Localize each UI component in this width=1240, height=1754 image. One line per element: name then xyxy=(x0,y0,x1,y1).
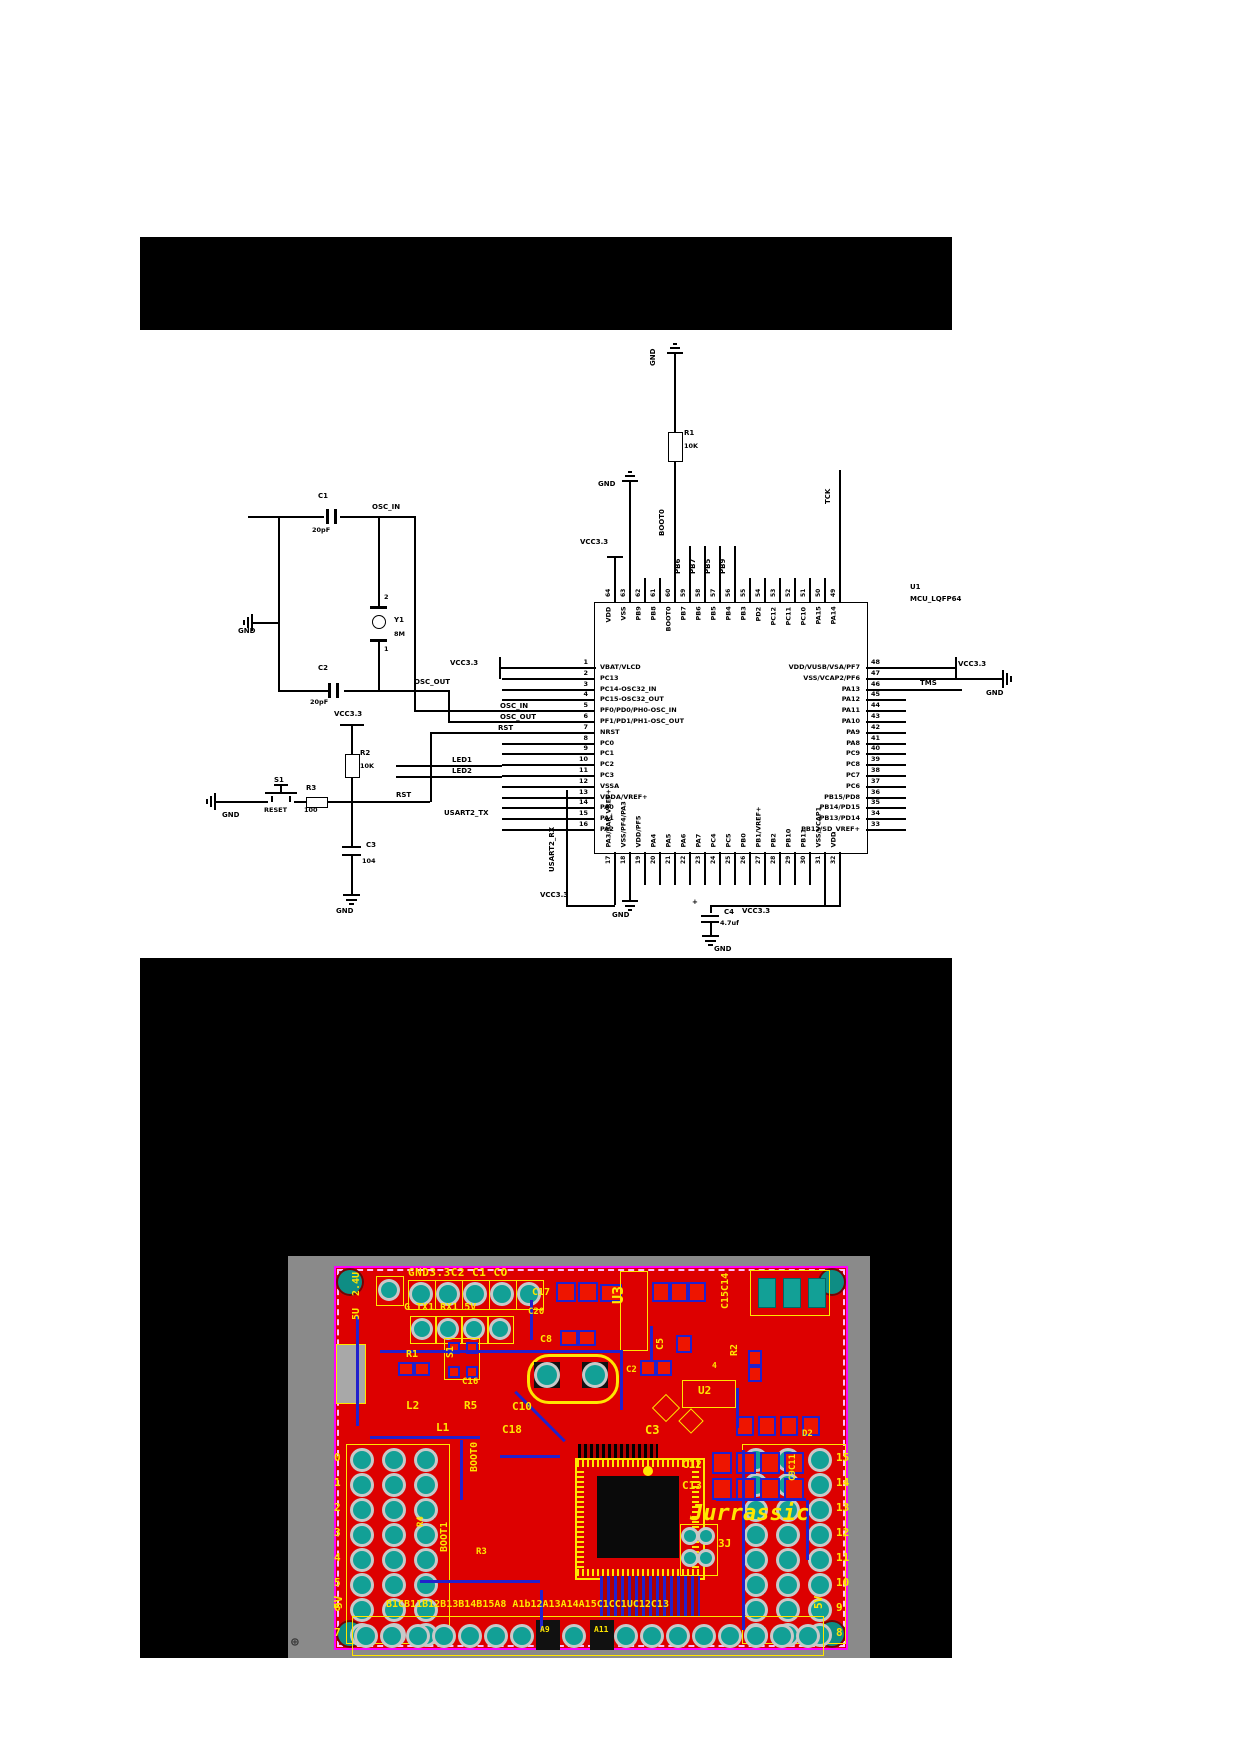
pin-number: 49 xyxy=(831,589,837,597)
pin-number: 16 xyxy=(560,821,588,828)
smd-pad xyxy=(560,1330,578,1346)
pin-stub xyxy=(734,852,736,885)
wire xyxy=(710,905,712,913)
y1-plate xyxy=(370,639,387,642)
right-header-number: 15 xyxy=(836,1452,849,1463)
smd-pad xyxy=(748,1350,762,1366)
silk-l2: L2 xyxy=(406,1400,419,1411)
net-label-pb5: PB5 xyxy=(705,559,712,574)
silk-r4: R4 xyxy=(417,1516,426,1527)
c4-ref: C4 xyxy=(724,909,734,916)
pin-number: 54 xyxy=(756,589,762,597)
hole-center xyxy=(585,1365,605,1385)
wire xyxy=(566,790,568,906)
right-header-number: 14 xyxy=(836,1477,849,1488)
wire xyxy=(866,689,962,691)
pin-label: PB7 xyxy=(681,606,688,620)
pin-number: 19 xyxy=(636,856,642,864)
electrolytic-cap xyxy=(808,1278,826,1308)
c1-plate xyxy=(326,509,329,524)
pin-label: VDD xyxy=(606,607,613,623)
wire xyxy=(351,802,353,846)
hole-center xyxy=(412,1285,430,1303)
pin-label: PA11 xyxy=(702,707,860,714)
pin-stub xyxy=(794,852,796,885)
pin-number: 15 xyxy=(560,810,588,817)
smd-pad xyxy=(578,1282,598,1302)
hole-center xyxy=(357,1627,375,1645)
wire xyxy=(704,546,706,602)
smd-pad xyxy=(414,1362,430,1376)
wire xyxy=(710,905,841,907)
y1-value: 8M xyxy=(394,631,405,638)
pin-stub xyxy=(644,852,646,885)
wire xyxy=(248,516,324,518)
pin-number: 27 xyxy=(756,856,762,864)
hole-center xyxy=(417,1476,435,1494)
r1-ref: R1 xyxy=(684,430,694,437)
pin-stub xyxy=(719,852,721,885)
hole-center xyxy=(409,1627,427,1645)
hole-center xyxy=(669,1627,687,1645)
wire xyxy=(628,471,632,473)
pin-label: VDD/PF5 xyxy=(636,816,643,848)
pin-label: PA14 xyxy=(831,606,838,624)
net-label-tms: TMS xyxy=(920,680,937,687)
wire xyxy=(448,721,504,723)
smd-pad xyxy=(448,1366,460,1378)
smd-pad xyxy=(760,1452,780,1474)
hole-center xyxy=(700,1552,712,1564)
left-header-number: 1 xyxy=(334,1477,341,1488)
hole-center xyxy=(537,1365,557,1385)
wire xyxy=(351,856,353,894)
smd-pad xyxy=(398,1362,414,1376)
smd-pad xyxy=(688,1282,706,1302)
pin-label: PA5 xyxy=(666,834,673,848)
pin-stub xyxy=(502,721,594,723)
wire xyxy=(265,792,297,794)
copper-trace xyxy=(736,1388,739,1428)
smd-pad xyxy=(676,1335,692,1353)
silk-c2: C2 xyxy=(626,1366,637,1375)
usb-connector xyxy=(336,1344,366,1404)
hole-center xyxy=(385,1551,403,1569)
net-label-usart_rx: USART2_RX xyxy=(549,827,556,872)
wire xyxy=(343,894,360,896)
wire xyxy=(280,786,282,792)
copper-trace xyxy=(530,1300,533,1340)
hole-center xyxy=(811,1526,829,1544)
pin-number: 53 xyxy=(771,589,777,597)
pin-number: 48 xyxy=(871,659,880,666)
r1-value: 10K xyxy=(684,443,698,450)
wire xyxy=(839,470,841,602)
hole-center xyxy=(747,1526,765,1544)
hole-center xyxy=(565,1627,583,1645)
pin-number: 32 xyxy=(831,856,837,864)
silk-j3: 3J xyxy=(718,1538,731,1549)
y1-plate xyxy=(370,606,387,609)
pin-label: PC5 xyxy=(726,833,733,847)
hole-center xyxy=(811,1576,829,1594)
c3-ref: C3 xyxy=(366,842,376,849)
pin-number: 44 xyxy=(871,702,880,709)
c2-plate xyxy=(336,683,339,698)
r2-body xyxy=(345,754,360,778)
silk-boot1: BOOT1 xyxy=(440,1522,450,1552)
wire xyxy=(719,546,721,602)
smd-pad xyxy=(784,1478,804,1500)
pin-label: VDD xyxy=(831,832,838,848)
c1-plate xyxy=(334,509,337,524)
pin-number: 62 xyxy=(636,589,642,597)
pin-stub xyxy=(809,578,811,602)
wire xyxy=(629,482,631,602)
silk-bottom_row: B1CB11B12B13B14B15A8 A1b12A13A14A15C1CC1… xyxy=(386,1600,669,1610)
pin-number: 56 xyxy=(726,589,732,597)
pin-number: 60 xyxy=(666,589,672,597)
wire xyxy=(253,622,280,624)
net-label-gnd: GND xyxy=(986,690,1003,697)
pin-label: PC11 xyxy=(786,607,793,626)
wire xyxy=(294,801,306,803)
pin-stub xyxy=(764,578,766,602)
y1-circle xyxy=(372,615,386,629)
wire xyxy=(1002,670,1004,688)
net-label-tck: TCK xyxy=(825,489,832,504)
hole-center xyxy=(353,1476,371,1494)
pin-label: PA12 xyxy=(702,696,860,703)
pin-label: PC15-OSC32_OUT xyxy=(600,696,664,703)
pin-number: 33 xyxy=(871,821,880,828)
pin-label: PA3/SAR_VREF+ xyxy=(606,789,613,847)
pin-label: PD2 xyxy=(756,607,763,622)
y1-pin1: 1 xyxy=(384,646,389,653)
wire xyxy=(501,667,596,669)
silk-u2: U2 xyxy=(698,1385,711,1396)
silk-r1: R1 xyxy=(406,1350,418,1360)
mcu-pins xyxy=(577,1468,584,1568)
mcu-pins xyxy=(577,1460,699,1467)
pin-stub xyxy=(704,852,706,885)
net-label-gnd: GND xyxy=(714,946,731,953)
pin-stub xyxy=(809,852,811,885)
pin-number: 40 xyxy=(871,745,880,752)
hole-center xyxy=(773,1627,791,1645)
hole-center xyxy=(353,1576,371,1594)
hole-center xyxy=(353,1526,371,1544)
smd-pad xyxy=(736,1452,756,1474)
hole-center xyxy=(684,1552,696,1564)
pin-number: 51 xyxy=(801,589,807,597)
pin-number: 38 xyxy=(871,767,880,774)
pin-label: PA7 xyxy=(696,834,703,848)
wire xyxy=(430,732,504,734)
pin-label: PC7 xyxy=(702,772,860,779)
smd-pad xyxy=(652,1282,670,1302)
wire xyxy=(274,784,288,786)
pin-stub xyxy=(764,852,766,885)
pin-label: PC6 xyxy=(702,783,860,790)
smd-pad xyxy=(712,1452,732,1474)
pin-number: 5 xyxy=(560,702,588,709)
pin-label: PC1 xyxy=(600,750,614,757)
silk-c18: C18 xyxy=(502,1424,522,1435)
wire xyxy=(734,546,736,602)
pin-stub xyxy=(779,852,781,885)
wire xyxy=(349,903,354,905)
hole-center xyxy=(466,1321,482,1337)
pin-stub xyxy=(502,732,594,734)
pin-number: 11 xyxy=(560,767,588,774)
wire xyxy=(351,726,353,754)
silk-r2: R2 xyxy=(730,1344,740,1356)
r2-value: 10K xyxy=(360,763,374,770)
pin-number: 23 xyxy=(696,856,702,864)
pin-stub xyxy=(502,710,594,712)
pin-label: VBAT/VLCD xyxy=(600,664,641,671)
pin-number: 25 xyxy=(726,856,732,864)
pin-number: 1 xyxy=(560,659,588,666)
wire xyxy=(866,667,956,669)
smd-pad xyxy=(656,1360,672,1376)
pin-number: 10 xyxy=(560,756,588,763)
hole-center xyxy=(487,1627,505,1645)
pin-number: 36 xyxy=(871,789,880,796)
net-label-osc_out: OSC_OUT xyxy=(500,714,536,721)
silk-c3: C3 xyxy=(645,1424,659,1436)
pin-stub xyxy=(502,678,594,680)
copper-trace xyxy=(540,1590,543,1630)
pin-number: 37 xyxy=(871,778,880,785)
c4-polarity: + xyxy=(692,899,698,906)
pin-label: PA8 xyxy=(702,740,860,747)
silk-four: 4 xyxy=(712,1362,717,1370)
pin-stub xyxy=(502,699,594,701)
wire xyxy=(625,475,635,477)
pin-number: 55 xyxy=(741,589,747,597)
pin-label: VSS/VCAP1 xyxy=(816,807,823,848)
wire xyxy=(566,905,615,907)
c2-value: 20pF xyxy=(310,699,328,706)
left-header-number: 7 xyxy=(334,1627,341,1638)
wire xyxy=(625,905,635,907)
silk-c15c14: C15C14 xyxy=(721,1273,731,1309)
net-label-vcc: VCC3.3 xyxy=(958,661,986,668)
pin-label: PB15/PD8 xyxy=(702,794,860,801)
smd-pad xyxy=(670,1282,688,1302)
pin-label: PC0 xyxy=(600,740,614,747)
smd-pad xyxy=(748,1366,762,1382)
wire xyxy=(216,801,222,803)
pin-label: PA10 xyxy=(702,718,860,725)
wire xyxy=(206,799,208,804)
hole-center xyxy=(513,1627,531,1645)
pin-number: 18 xyxy=(621,856,627,864)
r1-body xyxy=(668,432,683,462)
left-header-number: 4 xyxy=(334,1552,341,1563)
right-header-number: 9 xyxy=(836,1602,843,1613)
pin-number: 30 xyxy=(801,856,807,864)
silk-c17: C17 xyxy=(532,1288,550,1298)
silk-l1: L1 xyxy=(436,1422,449,1433)
pin-number: 47 xyxy=(871,670,880,677)
pin-stub xyxy=(659,852,661,885)
pin-label: NRST xyxy=(600,729,620,736)
net-label-usart_tx: USART2_TX xyxy=(444,810,489,817)
right-header-number: 8 xyxy=(836,1627,843,1638)
net-label-pb7: PB7 xyxy=(690,559,697,574)
silk-c16: C16 xyxy=(462,1378,478,1387)
hole-center xyxy=(353,1501,371,1519)
right-header-number: 12 xyxy=(836,1527,849,1538)
hole-center xyxy=(417,1551,435,1569)
silk-r3: R3 xyxy=(476,1548,487,1557)
silk-c12: C12 xyxy=(682,1459,702,1470)
pin-stub xyxy=(824,578,826,602)
wire xyxy=(448,690,450,722)
copper-trace xyxy=(420,1580,540,1583)
silk-s1: S1 xyxy=(446,1346,456,1358)
c4-value: 4.7uf xyxy=(720,920,739,927)
hole-center xyxy=(811,1551,829,1569)
silk-c9c11: C9C11 xyxy=(789,1454,798,1481)
wire xyxy=(342,846,361,848)
pin-number: 12 xyxy=(560,778,588,785)
net-label-pb9: PB9 xyxy=(720,559,727,574)
wire xyxy=(378,642,380,692)
wire xyxy=(351,776,353,802)
pin-label: PB5 xyxy=(711,606,718,620)
wire xyxy=(705,940,716,942)
silk-c8: C8 xyxy=(540,1335,552,1345)
mcu-part: MCU_LQFP64 xyxy=(910,596,961,603)
right-header-number: 10 xyxy=(836,1577,849,1588)
hole-center xyxy=(747,1627,765,1645)
s1-label: RESET xyxy=(264,807,287,814)
hole-center xyxy=(700,1530,712,1542)
pin-number: 52 xyxy=(786,589,792,597)
net-label-vcc: VCC3.3 xyxy=(742,908,770,915)
wire xyxy=(708,944,713,946)
wire xyxy=(414,710,504,712)
net-label-gnd: GND xyxy=(222,812,239,819)
pin-number: 24 xyxy=(711,856,717,864)
wire xyxy=(396,776,502,778)
wire xyxy=(629,852,631,900)
net-label-osc_in: OSC_IN xyxy=(500,703,528,710)
wire xyxy=(674,354,676,432)
pin-stub xyxy=(749,578,751,602)
wire xyxy=(430,732,432,802)
pin-label: BOOT0 xyxy=(666,607,673,632)
copper-trace xyxy=(356,1316,359,1426)
pin-number: 43 xyxy=(871,713,880,720)
hole-center xyxy=(385,1526,403,1544)
r2-ref: R2 xyxy=(360,750,370,757)
pin-number: 28 xyxy=(771,856,777,864)
left-header-number: 2 xyxy=(334,1502,341,1513)
left-header-number: 3 xyxy=(334,1527,341,1538)
silk-r5: R5 xyxy=(464,1400,477,1411)
hole-center xyxy=(417,1451,435,1469)
net-label-vcc: VCC3.3 xyxy=(580,539,608,546)
wire xyxy=(378,516,380,606)
smd-pad xyxy=(736,1478,756,1500)
hole-center xyxy=(811,1451,829,1469)
y1-ref: Y1 xyxy=(394,617,404,624)
copper-trace xyxy=(500,1455,560,1458)
pin-label: VSS/VCAP2/PF6 xyxy=(702,675,860,682)
wire xyxy=(346,899,357,901)
hole-center xyxy=(466,1285,484,1303)
wire xyxy=(340,516,414,518)
pin-number: 29 xyxy=(786,856,792,864)
mcu-pin1-dot xyxy=(643,1466,653,1476)
hole-center xyxy=(643,1627,661,1645)
copper-trace xyxy=(650,1326,653,1360)
smd-pad xyxy=(780,1416,798,1436)
pin-number: 3 xyxy=(560,681,588,688)
pin-label: VDD/VUSB/VSA/PF7 xyxy=(702,664,860,671)
pin-number: 59 xyxy=(681,589,687,597)
pin-number: 57 xyxy=(711,589,717,597)
hole-center xyxy=(353,1551,371,1569)
hole-center xyxy=(439,1285,457,1303)
net-label-gnd: GND xyxy=(650,349,657,366)
wire xyxy=(614,558,616,602)
net-label-rst: RST xyxy=(396,792,411,799)
silk-c10: C10 xyxy=(512,1401,532,1412)
silk-d2: D2 xyxy=(802,1430,813,1439)
pin-number: 42 xyxy=(871,724,880,731)
silk-v24: 2.4U xyxy=(352,1272,362,1296)
smd-pad xyxy=(640,1360,656,1376)
wire xyxy=(278,516,280,692)
wire xyxy=(396,765,502,767)
r3-ref: R3 xyxy=(306,785,316,792)
pin-number: 13 xyxy=(560,789,588,796)
hole-center xyxy=(440,1321,456,1337)
electrolytic-cap xyxy=(758,1278,776,1308)
pin-label: PA6 xyxy=(681,834,688,848)
pin-label: PA13 xyxy=(702,686,860,693)
pin-stub xyxy=(794,578,796,602)
wire xyxy=(210,796,212,807)
pin-label: PC4 xyxy=(711,833,718,847)
net-label-boot0: BOOT0 xyxy=(659,509,666,536)
wire xyxy=(1006,673,1008,685)
hole-center xyxy=(799,1627,817,1645)
pin-stub xyxy=(866,829,906,831)
wire xyxy=(824,852,826,905)
pin-label: PC10 xyxy=(801,607,808,626)
pin-number: 14 xyxy=(560,799,588,806)
pin-number: 6 xyxy=(560,713,588,720)
silk-u3: U3 xyxy=(611,1286,626,1304)
smd-pad xyxy=(578,1330,596,1346)
pin-label: PB2 xyxy=(771,833,778,847)
silk-row2: G TX1 RX1 5V xyxy=(404,1303,476,1313)
net-label-pb6: PB6 xyxy=(675,559,682,574)
c2-plate xyxy=(328,683,331,698)
hole-center xyxy=(383,1627,401,1645)
hole-center xyxy=(695,1627,713,1645)
smd-pad xyxy=(556,1282,576,1302)
wire xyxy=(670,347,680,349)
net-label-led2: LED2 xyxy=(452,768,472,775)
